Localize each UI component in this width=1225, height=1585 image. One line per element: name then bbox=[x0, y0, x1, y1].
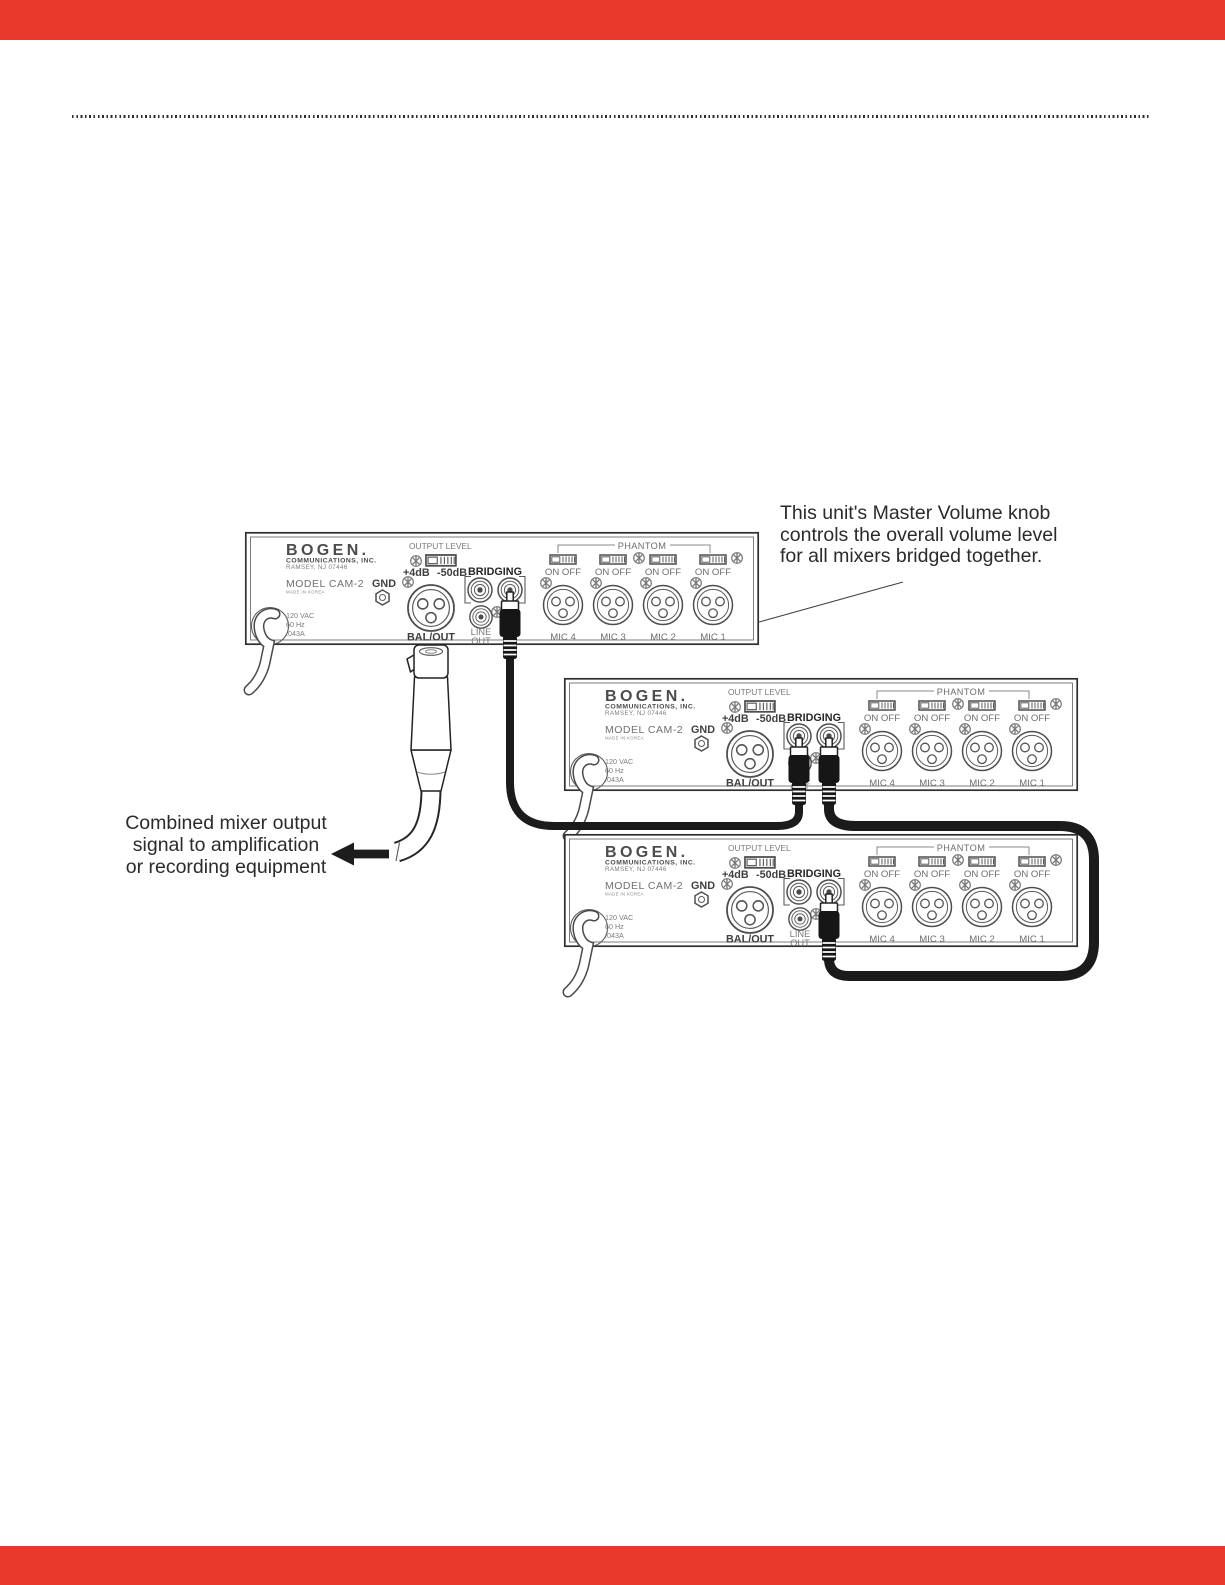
bridging-diagram: BOGEN. COMMUNICATIONS, INC. RAMSEY, NJ 0… bbox=[0, 0, 1225, 1585]
callout-master-line-1: This unit's Master Volume knob bbox=[780, 503, 1057, 525]
callout-leader-line bbox=[759, 582, 903, 622]
callout-output-line-3: or recording equipment bbox=[110, 856, 342, 878]
callout-master-line-3: for all mixers bridged together. bbox=[780, 546, 1057, 568]
callout-output-line-2: signal to amplification bbox=[110, 834, 342, 856]
callout-output-line-1: Combined mixer output bbox=[110, 812, 342, 834]
callout-combined-output: Combined mixer output signal to amplific… bbox=[110, 812, 342, 878]
callout-master-line-2: controls the overall volume level bbox=[780, 525, 1057, 547]
rca-plug-unit2-right bbox=[819, 738, 839, 805]
xlr-cable-connector bbox=[396, 645, 451, 861]
xlr-boot bbox=[411, 750, 451, 791]
manual-page: BOGEN. COMMUNICATIONS, INC. RAMSEY, NJ 0… bbox=[0, 0, 1225, 1585]
rca-plug-unit1-right bbox=[500, 592, 520, 659]
rca-plug-unit3-right bbox=[819, 894, 839, 961]
callout-master-volume: This unit's Master Volume knob controls … bbox=[780, 503, 1057, 568]
rca-plug-unit2-left bbox=[789, 738, 809, 805]
xlr-barrel bbox=[411, 677, 451, 750]
